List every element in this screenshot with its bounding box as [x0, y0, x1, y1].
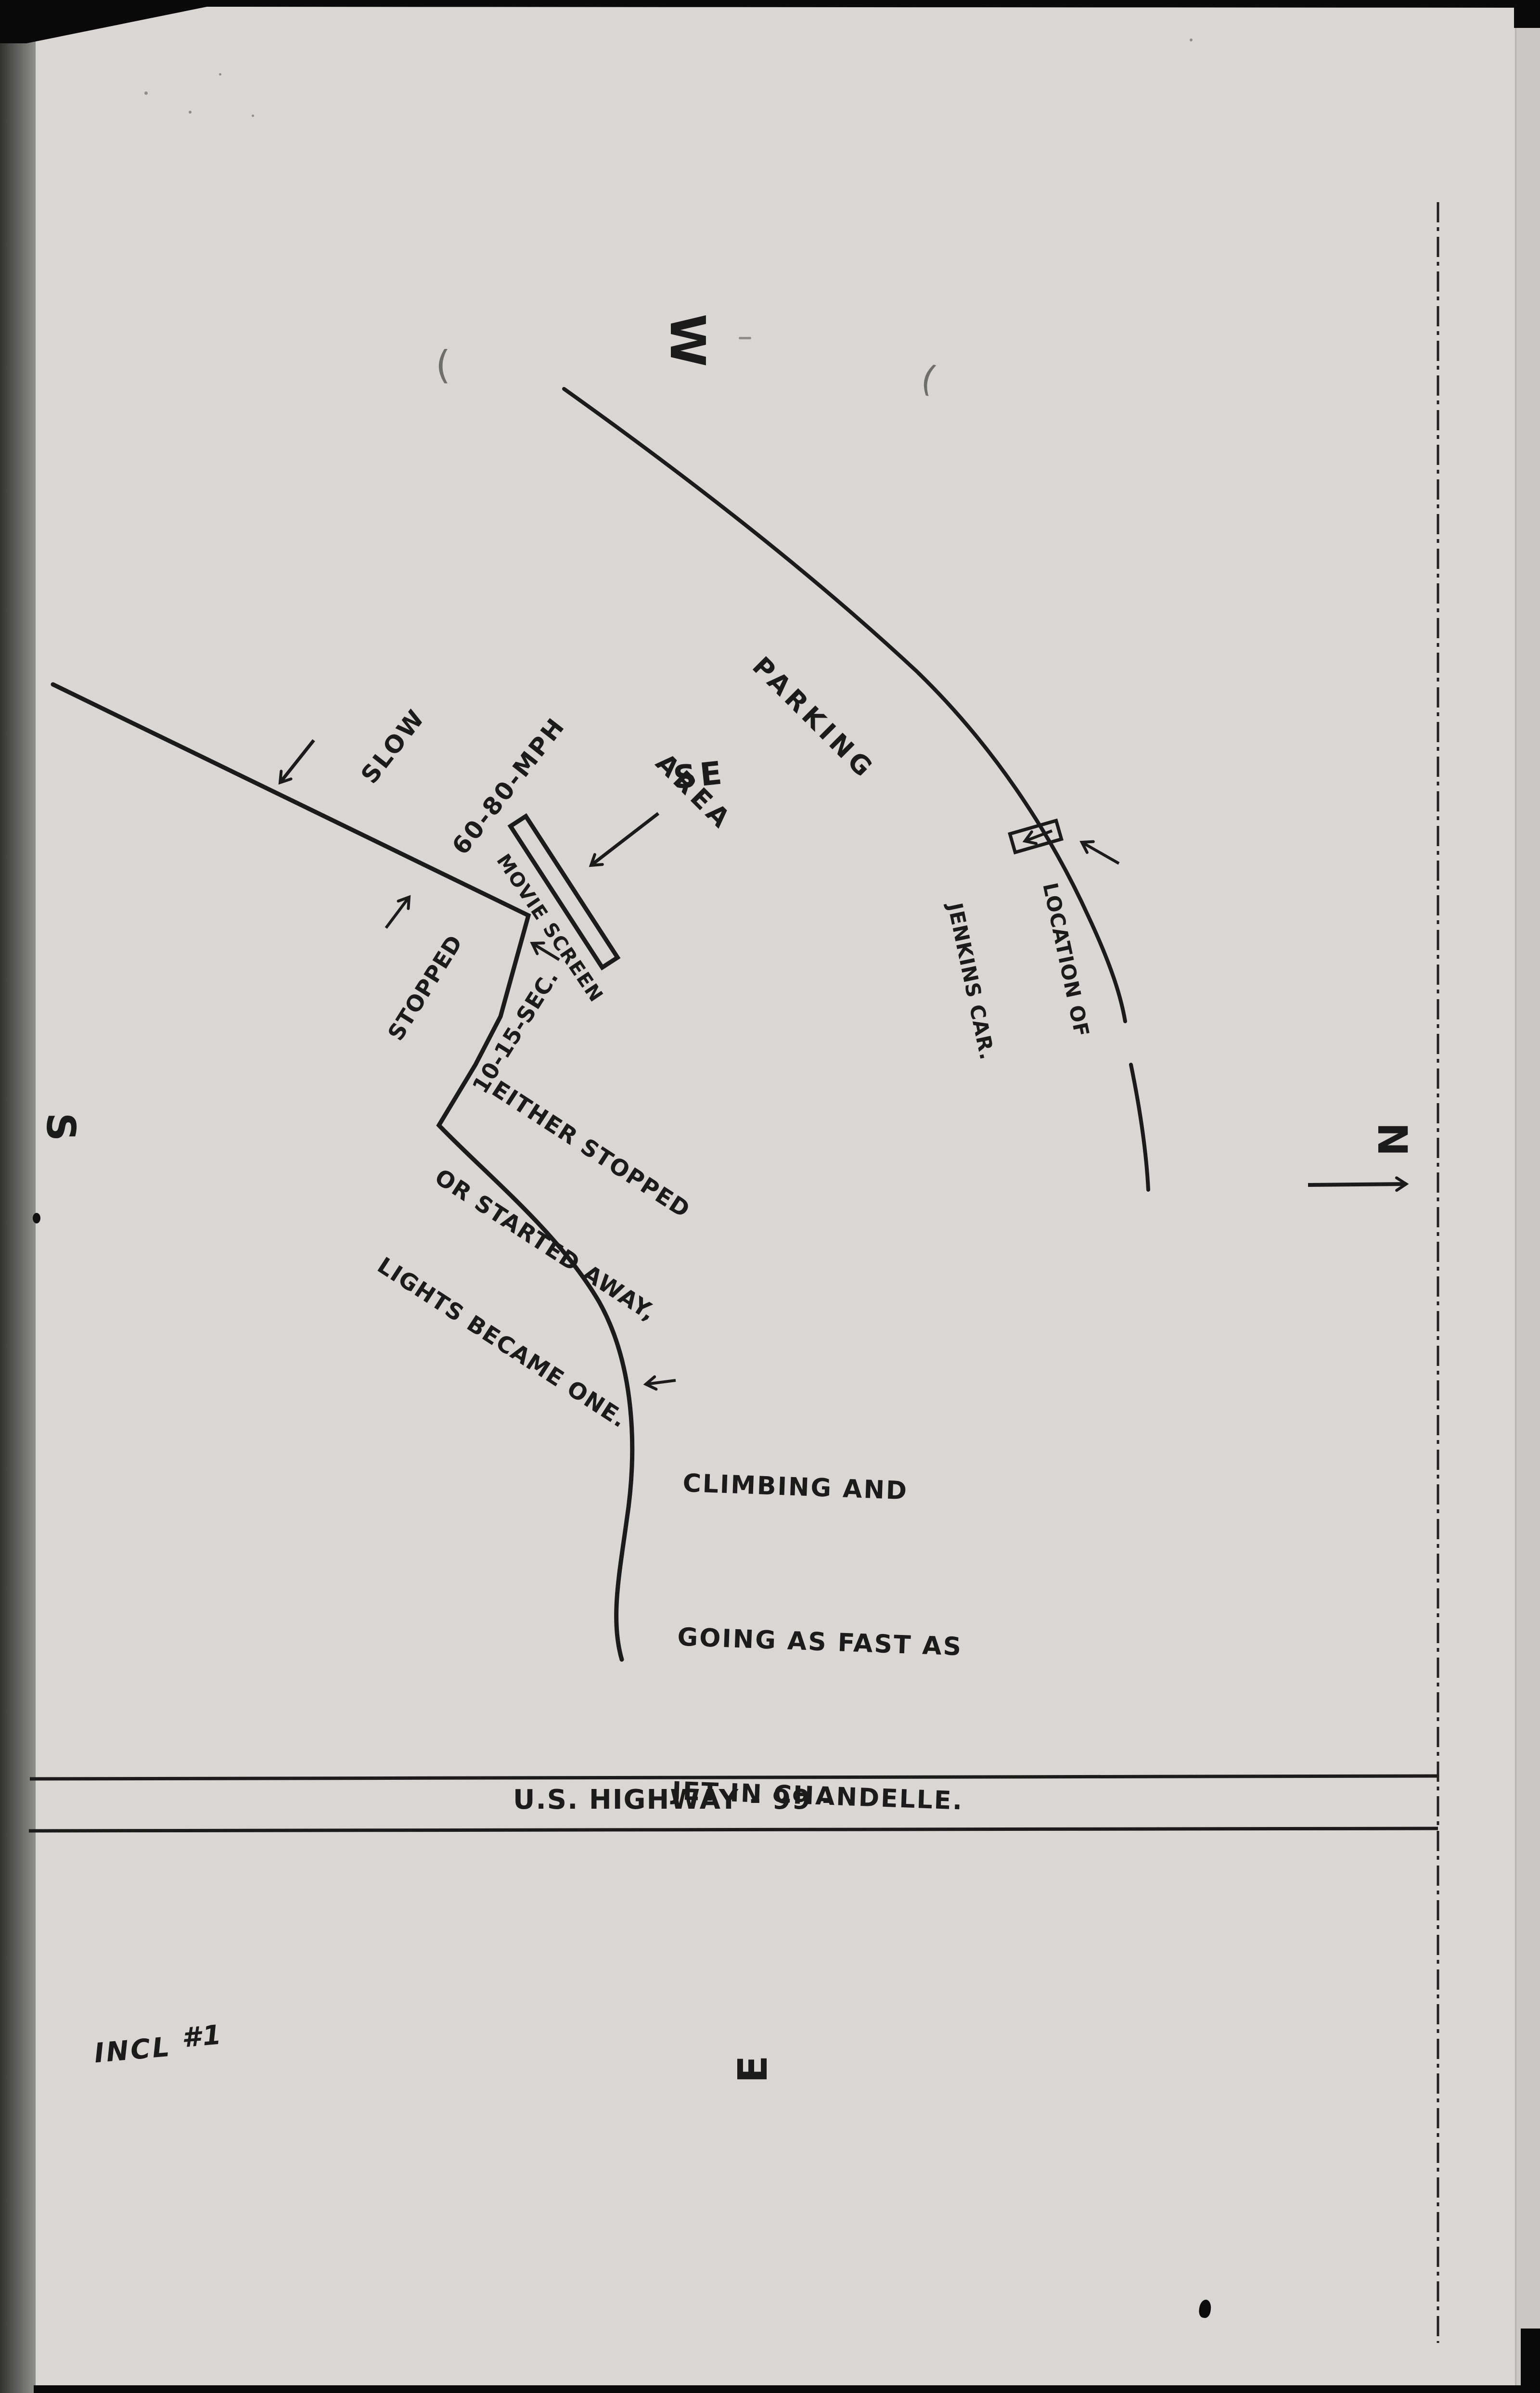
compass-east: E — [732, 2056, 773, 2083]
compass-north: N — [1372, 1122, 1412, 1156]
se-heading-label: SE — [672, 757, 727, 794]
climbing-label: CLIMBING AND GOING AS FAST AS JET IN CHA… — [667, 1355, 979, 1930]
parking-area-curve-end — [1131, 1065, 1148, 1190]
scan-speck — [144, 91, 148, 95]
ink-dot — [33, 1213, 40, 1223]
enclosure-note: INCL #1 — [46, 2002, 227, 2098]
slow-line-1: SLOW — [351, 638, 484, 792]
compass-west: W — [663, 314, 711, 367]
scan-speck — [739, 337, 751, 339]
north-arrow — [1308, 1184, 1406, 1185]
scan-speck — [189, 111, 192, 114]
highway-label: U.S. HIGHWAY - 99 - — [513, 1787, 834, 1814]
scanned-sketch-page: W N S E PARKING AREA SLOW 60-80-MPH SE M… — [0, 0, 1540, 2393]
climbing-line-1: CLIMBING AND — [682, 1458, 975, 1519]
slow-arrow — [280, 740, 314, 783]
stray-mark: ( — [436, 343, 450, 387]
slow-line-2: 60-80-MPH — [442, 708, 575, 863]
enclosure-word: INCL — [93, 2032, 173, 2070]
scan-speck — [252, 115, 254, 117]
enclosure-number: #1 — [180, 2019, 224, 2054]
scan-speck — [219, 73, 221, 76]
climbing-line-2: GOING AS FAST AS — [677, 1612, 970, 1673]
stopped-line-1: STOPPED — [380, 910, 482, 1047]
photocopy-top-strip — [0, 0, 1540, 43]
parking-line-1: PARKING — [741, 646, 886, 791]
jenkins-line-2: JENKINS CAR. — [939, 900, 1004, 1063]
jenkins-line-1: LOCATION OF — [1034, 880, 1099, 1043]
compass-south: S — [40, 1113, 80, 1141]
scan-speck — [1190, 39, 1193, 41]
jenkins-car-arrow — [1082, 842, 1119, 863]
